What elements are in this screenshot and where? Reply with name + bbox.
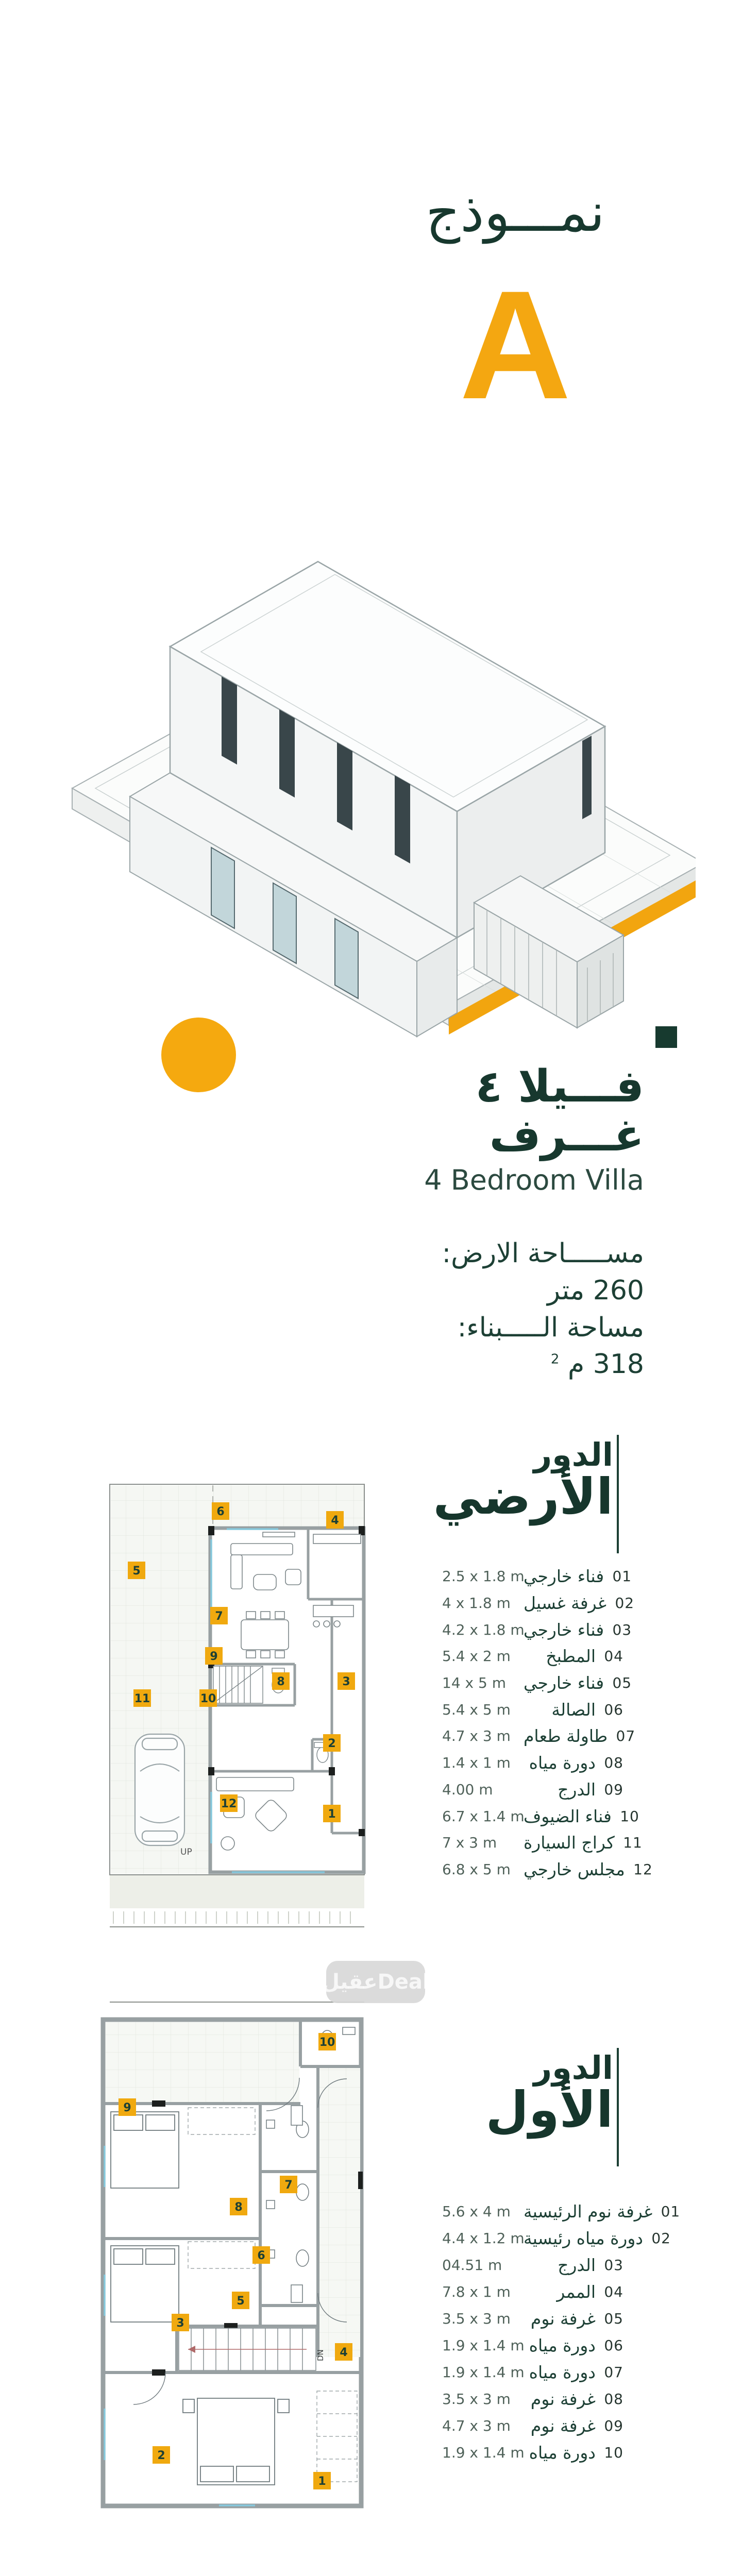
room-row: 1.4 x 1 mدورة مياه08 — [442, 1750, 623, 1776]
room-dimension: 2.5 x 1.8 m — [442, 1568, 524, 1585]
svg-text:5: 5 — [237, 2295, 244, 2308]
room-name: الممر — [524, 2282, 596, 2302]
svg-text:11: 11 — [134, 1692, 150, 1705]
first-floor-heading: الدور الأول — [397, 2052, 613, 2136]
plan-marker: 9 — [205, 1647, 223, 1665]
room-name: فناء خارجي — [524, 1673, 604, 1693]
watermark-text: عقيلDeal — [322, 1970, 429, 1994]
room-number: 04 — [596, 1648, 623, 1665]
room-dimension: 1.4 x 1 m — [442, 1754, 524, 1771]
room-row: 4.7 x 3 mغرفة نوم09 — [442, 2412, 623, 2439]
room-row: 5.6 x 4 mغرفة نوم الرئيسية01 — [442, 2198, 623, 2225]
room-name: غرفة نوم — [524, 2416, 596, 2436]
room-row: 4 x 1.8 mغرفة غسيل02 — [442, 1590, 623, 1617]
villa-title-english: 4 Bedroom Villa — [314, 1164, 644, 1196]
room-name: الصالة — [524, 1700, 596, 1720]
plan-marker: 8 — [230, 2198, 247, 2215]
room-number: 12 — [625, 1861, 653, 1878]
room-name: غرفة نوم الرئيسية — [524, 2201, 652, 2222]
svg-text:1: 1 — [328, 1808, 335, 1821]
room-number: 10 — [596, 2444, 623, 2461]
plan-marker: 12 — [220, 1794, 238, 1812]
room-dimension: 1.9 x 1.4 m — [442, 2444, 524, 2461]
svg-text:3: 3 — [342, 1675, 350, 1688]
svg-text:10: 10 — [200, 1692, 216, 1705]
room-row: 1.9 x 1.4 mدورة مياه10 — [442, 2439, 623, 2466]
room-number: 09 — [596, 2417, 623, 2434]
plan-marker: 5 — [232, 2292, 249, 2309]
first-floor-room-list: 5.6 x 4 mغرفة نوم الرئيسية014.4 x 1.2 mد… — [442, 2198, 623, 2466]
room-row: 2.5 x 1.8 mفناء خارجي01 — [442, 1563, 623, 1590]
ground-heading-rule — [617, 1435, 619, 1553]
room-row: 4.00 mالدرج09 — [442, 1776, 623, 1803]
villa-title-block: فـــيلا ٤ غـــرف 4 Bedroom Villa مســـــ… — [314, 1062, 644, 1383]
plan-marker: 11 — [133, 1689, 151, 1707]
built-area-label: مساحة الـــــبناء: — [314, 1310, 644, 1347]
room-number: 10 — [612, 1808, 639, 1825]
room-name: دورة مياه — [524, 2443, 596, 2463]
room-name: فناء الضيوف — [524, 1806, 612, 1826]
plan-marker: 3 — [338, 1672, 355, 1690]
svg-text:3: 3 — [176, 2317, 184, 2330]
room-row: 4.2 x 1.8 mفناء خارجي03 — [442, 1616, 623, 1643]
room-row: 6.7 x 1.4 mفناء الضيوف10 — [442, 1803, 623, 1829]
room-number: 07 — [608, 1727, 635, 1744]
room-row: 4.7 x 3 mطاولة طعام07 — [442, 1723, 623, 1750]
plan-marker: 7 — [280, 2176, 297, 2193]
room-row: 6.8 x 5 mمجلس خارجي12 — [442, 1856, 623, 1883]
room-number: 07 — [596, 2364, 623, 2381]
plan-marker: 4 — [335, 2343, 352, 2361]
room-row: 1.9 x 1.4 mدورة مياه07 — [442, 2359, 623, 2385]
room-number: 03 — [596, 2257, 623, 2274]
svg-text:9: 9 — [210, 1650, 217, 1663]
svg-text:6: 6 — [216, 1505, 224, 1518]
room-dimension: 1.9 x 1.4 m — [442, 2337, 524, 2354]
room-row: 4.4 x 1.2 mدورة مياه رئيسية02 — [442, 2225, 623, 2251]
room-number: 06 — [596, 1701, 623, 1718]
svg-text:8: 8 — [234, 2201, 242, 2214]
plan-marker: 8 — [272, 1672, 290, 1690]
svg-text:4: 4 — [340, 2346, 347, 2359]
room-dimension: 4.7 x 3 m — [442, 1727, 524, 1744]
plan-marker: 5 — [128, 1562, 145, 1579]
room-dimension: 5.6 x 4 m — [442, 2203, 524, 2220]
room-row: 5.4 x 5 mالصالة06 — [442, 1696, 623, 1723]
plan-marker: 3 — [172, 2314, 189, 2331]
svg-text:4: 4 — [331, 1514, 339, 1527]
svg-text:2: 2 — [328, 1737, 335, 1750]
model-block: نمـــوذج A — [361, 185, 670, 422]
room-name: غرفة نوم — [524, 2309, 596, 2329]
room-number: 06 — [596, 2337, 623, 2354]
plan-marker: 6 — [212, 1502, 229, 1520]
plan-marker: 4 — [326, 1511, 344, 1529]
first-heading-main: الأول — [397, 2084, 613, 2136]
room-dimension: 7.8 x 1 m — [442, 2283, 524, 2300]
room-name: الدرج — [524, 1780, 596, 1800]
first-heading-top: الدور — [397, 2052, 613, 2084]
ground-floor-heading: الدور الأرضي — [397, 1439, 613, 1523]
room-number: 08 — [596, 1754, 623, 1771]
ground-up-label: UP — [180, 1847, 192, 1857]
svg-text:7: 7 — [215, 1610, 223, 1623]
plan-marker: 6 — [252, 2246, 270, 2264]
room-number: 08 — [596, 2391, 623, 2408]
room-dimension: 5.4 x 5 m — [442, 1701, 524, 1718]
room-row: 14 x 5 mفناء خارجي05 — [442, 1670, 623, 1697]
ground-floor-room-list: 2.5 x 1.8 mفناء خارجي014 x 1.8 mغرفة غسي… — [442, 1563, 623, 1883]
brochure-page: نمـــوذج A — [0, 0, 742, 2576]
room-number: 02 — [643, 2230, 671, 2247]
room-name: دورة مياه رئيسية — [524, 2228, 643, 2248]
room-number: 01 — [604, 1568, 632, 1585]
room-name: فناء خارجي — [524, 1566, 604, 1586]
svg-text:6: 6 — [257, 2249, 265, 2262]
yellow-circle-decoration — [161, 1018, 236, 1092]
room-number: 03 — [604, 1621, 632, 1638]
room-number: 01 — [652, 2203, 680, 2220]
land-area-value: 260 متر — [314, 1273, 644, 1310]
first-heading-rule — [617, 2048, 619, 2166]
room-number: 11 — [615, 1834, 643, 1851]
room-name: غرفة نوم — [524, 2389, 596, 2409]
room-row: 3.5 x 3 mغرفة نوم08 — [442, 2385, 623, 2412]
room-dimension: 5.4 x 2 m — [442, 1648, 524, 1665]
room-number: 02 — [606, 1595, 634, 1612]
villa-areas: مســـــاحة الارض: 260 متر مساحة الـــــب… — [314, 1235, 644, 1383]
ground-heading-top: الدور — [397, 1439, 613, 1471]
room-name: الدرج — [524, 2255, 596, 2275]
villa-isometric-render — [57, 546, 696, 1061]
room-dimension: 04.51 m — [442, 2257, 524, 2274]
room-name: دورة مياه — [524, 2362, 596, 2382]
room-number: 09 — [596, 1781, 623, 1798]
room-name: دورة مياه — [524, 2335, 596, 2355]
room-dimension: 4.00 m — [442, 1781, 524, 1798]
land-area-label: مســـــاحة الارض: — [314, 1235, 644, 1273]
room-row: 3.5 x 3 mغرفة نوم05 — [442, 2305, 623, 2332]
room-dimension: 3.5 x 3 m — [442, 2310, 524, 2327]
ground-floor-plan: UP 645798311102121 — [108, 1483, 366, 2006]
room-name: المطبخ — [524, 1646, 596, 1666]
room-dimension: 4 x 1.8 m — [442, 1595, 524, 1612]
room-name: غرفة غسيل — [524, 1593, 606, 1613]
room-number: 05 — [604, 1674, 632, 1691]
ground-heading-main: الأرضي — [397, 1471, 613, 1523]
room-number: 05 — [596, 2310, 623, 2327]
built-area-value: 318 م 2 — [314, 1346, 644, 1383]
svg-text:9: 9 — [123, 2102, 131, 2114]
plan-marker: 10 — [318, 2033, 336, 2050]
room-name: دورة مياه — [524, 1753, 596, 1773]
room-name: طاولة طعام — [524, 1726, 608, 1746]
plan-marker: 7 — [210, 1607, 228, 1624]
room-dimension: 6.8 x 5 m — [442, 1861, 524, 1878]
svg-text:8: 8 — [277, 1675, 284, 1688]
room-name: مجلس خارجي — [524, 1859, 625, 1879]
model-letter: A — [361, 267, 670, 422]
room-row: 7.8 x 1 mالممر04 — [442, 2278, 623, 2305]
model-label-ar: نمـــوذج — [361, 185, 670, 239]
room-dimension: 6.7 x 1.4 m — [442, 1808, 524, 1825]
watermark-badge: عقيلDeal — [326, 1961, 425, 2003]
green-square-decoration — [655, 1026, 677, 1048]
room-name: كراج السيارة — [524, 1833, 615, 1853]
svg-text:1: 1 — [318, 2475, 326, 2488]
room-row: 5.4 x 2 mالمطبخ04 — [442, 1643, 623, 1670]
svg-text:10: 10 — [319, 2036, 335, 2049]
svg-text:7: 7 — [284, 2179, 292, 2192]
room-number: 04 — [596, 2283, 623, 2300]
svg-text:12: 12 — [221, 1798, 237, 1810]
room-dimension: 4.2 x 1.8 m — [442, 1621, 524, 1638]
room-name: فناء خارجي — [524, 1620, 604, 1640]
room-dimension: 1.9 x 1.4 m — [442, 2364, 524, 2381]
room-row: 04.51 mالدرج03 — [442, 2251, 623, 2278]
plan-marker: 2 — [323, 1734, 341, 1752]
plan-marker: 1 — [313, 2472, 331, 2489]
first-floor-plan: DN 10978653421 — [100, 2017, 364, 2509]
first-dn-label: DN — [316, 2349, 325, 2361]
plan-marker: 1 — [323, 1805, 341, 1822]
room-row: 1.9 x 1.4 mدورة مياه06 — [442, 2332, 623, 2359]
plan-marker: 9 — [119, 2098, 136, 2116]
room-dimension: 4.4 x 1.2 m — [442, 2230, 524, 2247]
room-dimension: 4.7 x 3 m — [442, 2417, 524, 2434]
room-dimension: 7 x 3 m — [442, 1834, 524, 1851]
room-row: 7 x 3 mكراج السيارة11 — [442, 1829, 623, 1856]
svg-text:2: 2 — [157, 2449, 165, 2462]
plan-marker: 2 — [153, 2446, 170, 2464]
plan-marker: 10 — [199, 1689, 217, 1707]
room-dimension: 3.5 x 3 m — [442, 2391, 524, 2408]
room-dimension: 14 x 5 m — [442, 1674, 524, 1691]
svg-text:5: 5 — [132, 1565, 140, 1578]
villa-title-arabic: فـــيلا ٤ غـــرف — [314, 1062, 644, 1160]
